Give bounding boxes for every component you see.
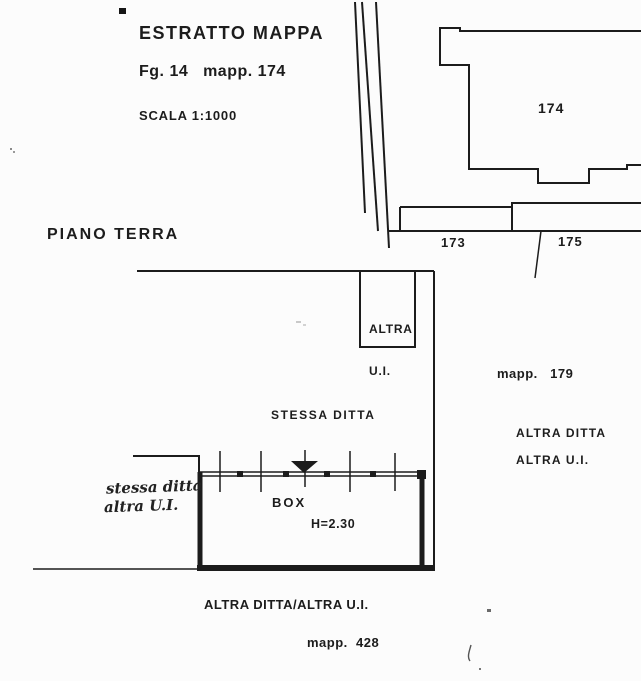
bottom-owner-label: ALTRA DITTA/ALTRA U.I.	[204, 598, 369, 612]
altra-ditta-right-label: ALTRA DITTA	[516, 427, 606, 440]
stessa-ditta-label: STESSA DITTA	[271, 409, 376, 422]
parcel-label-175: 175	[558, 235, 583, 249]
handwritten-stessa-ditta: stessa ditta	[106, 477, 203, 497]
handwritten-altra-ui: altra U.I.	[104, 497, 179, 517]
parcel-label-173: 173	[441, 236, 466, 250]
mapp-179-label: mapp. 179	[497, 367, 573, 381]
parcel-band-173-175	[388, 203, 641, 278]
boundary-tick	[535, 231, 541, 278]
left-step-wall	[133, 456, 199, 472]
cadastral-extract-page: ESTRATTO MAPPA Fg. 14 mapp. 174 SCALA 1:…	[0, 0, 641, 681]
box-label: BOX	[272, 496, 306, 510]
box-height-label: H=2.30	[311, 518, 355, 531]
floorplan-title: PIANO TERRA	[47, 227, 179, 244]
altra-ui-room-label-line2: U.I.	[369, 364, 413, 378]
box-grate-edge	[200, 450, 422, 492]
mapp-428-label: mapp. 428	[307, 636, 379, 650]
scale-label: SCALA 1:1000	[139, 109, 237, 123]
parcel-label-174: 174	[538, 101, 564, 116]
altra-ui-room-label-line1: ALTRA	[369, 322, 413, 336]
altra-ui-right-label: ALTRA U.I.	[516, 454, 589, 467]
altra-ui-room-label: ALTRA U.I.	[369, 294, 413, 406]
access-arrow-icon	[291, 461, 318, 473]
sheet-parcel-reference: Fg. 14 mapp. 174	[139, 64, 286, 81]
extract-title: ESTRATTO MAPPA	[139, 24, 324, 43]
road-lines	[355, 2, 389, 248]
